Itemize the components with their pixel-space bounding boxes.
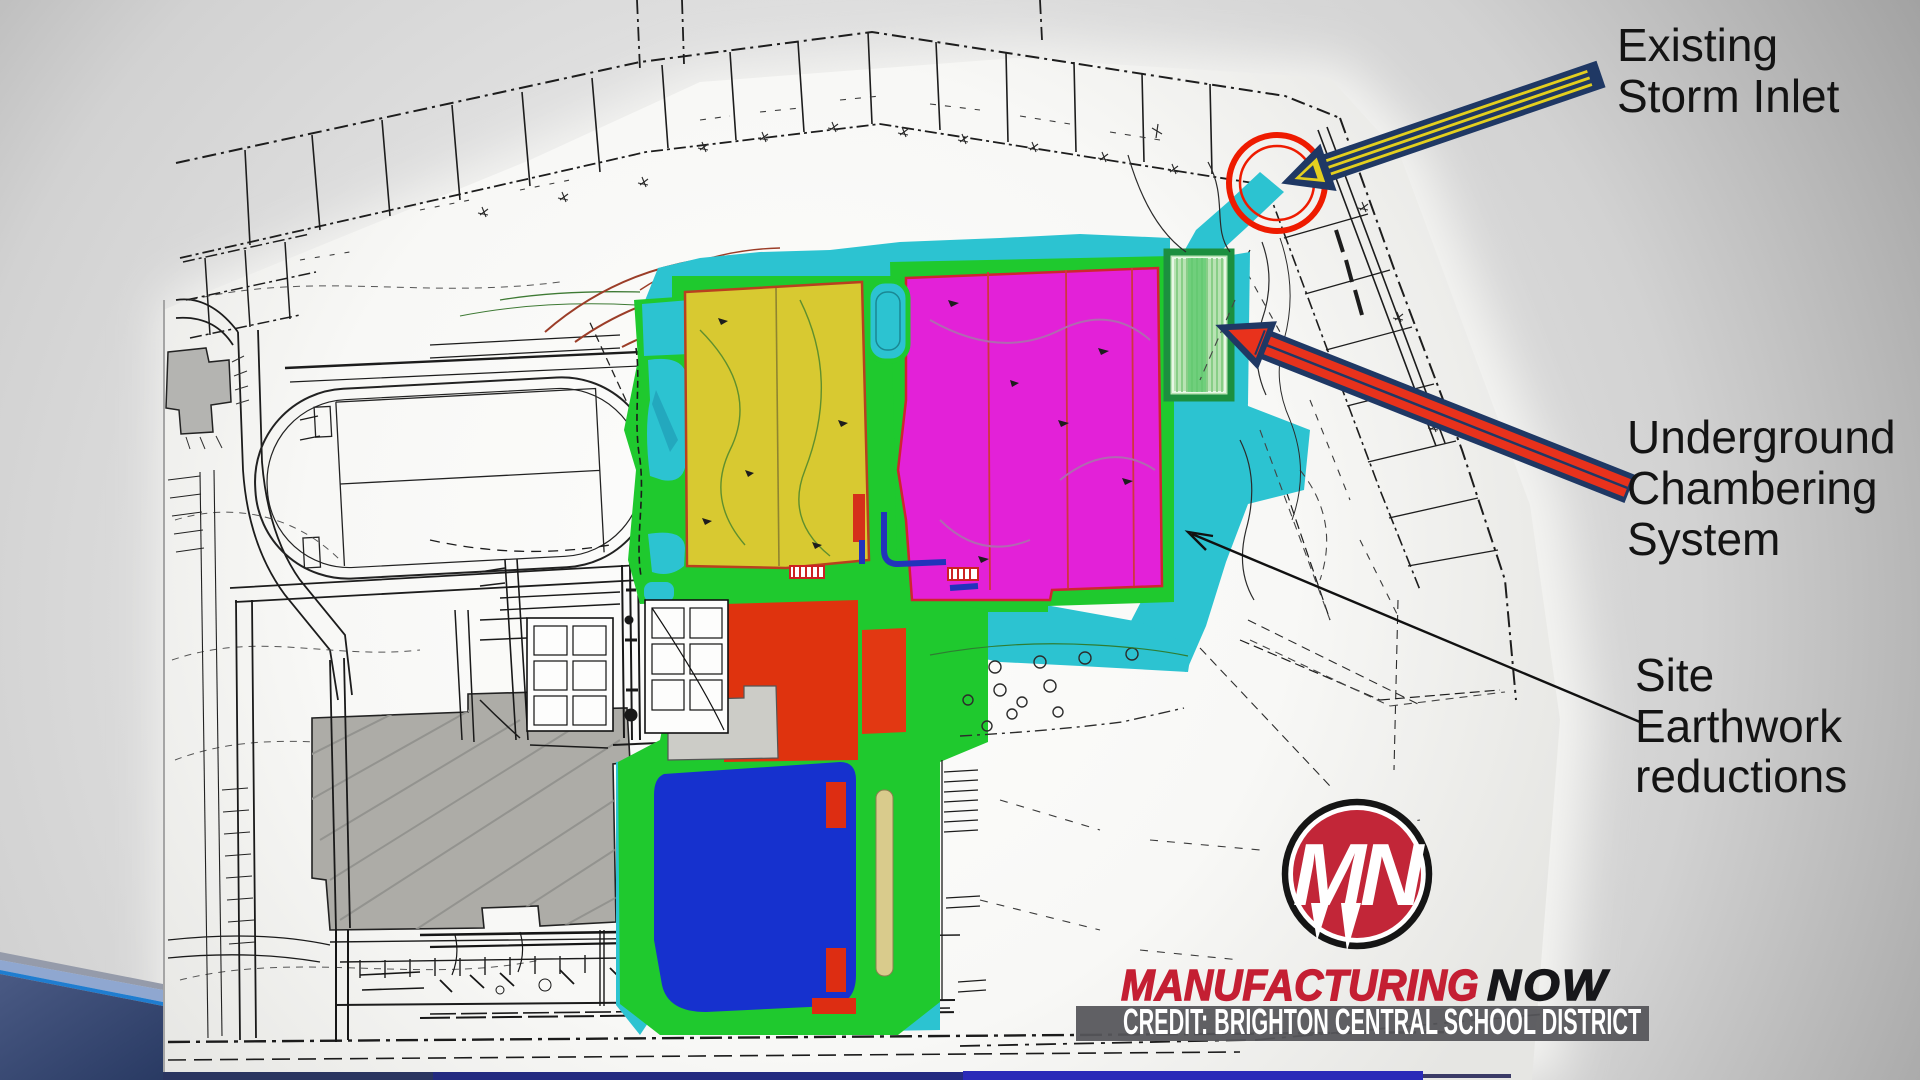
svg-text:Existing: Existing xyxy=(1617,19,1778,71)
svg-text:System: System xyxy=(1627,513,1780,565)
svg-text:reductions: reductions xyxy=(1635,750,1847,802)
svg-text:Earthwork: Earthwork xyxy=(1635,700,1843,752)
svg-text:Chambering: Chambering xyxy=(1627,462,1878,514)
svg-text:Underground: Underground xyxy=(1627,411,1896,463)
svg-text:CREDIT: BRIGHTON CENTRAL SCHOO: CREDIT: BRIGHTON CENTRAL SCHOOL DISTRICT xyxy=(1123,1002,1641,1042)
svg-text:Storm Inlet: Storm Inlet xyxy=(1617,70,1840,122)
svg-text:Site: Site xyxy=(1635,649,1714,701)
